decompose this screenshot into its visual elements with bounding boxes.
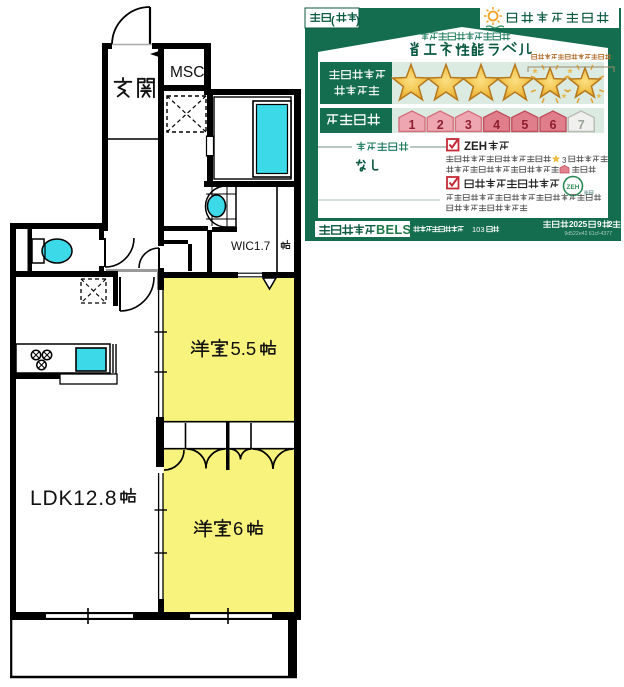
svg-text:3: 3 (465, 118, 472, 132)
svg-text:LDK12.8: LDK12.8 (30, 487, 117, 510)
svg-text:WIC1.7: WIC1.7 (231, 239, 270, 253)
svg-text:(: ( (331, 15, 335, 27)
svg-text:MSC: MSC (170, 64, 204, 81)
svg-text:2025: 2025 (569, 220, 588, 229)
svg-text:): ) (356, 15, 360, 27)
svg-text:5: 5 (521, 118, 528, 132)
svg-text:2: 2 (437, 118, 444, 132)
svg-text:6: 6 (550, 118, 557, 132)
svg-text:BELS: BELS (376, 222, 411, 237)
svg-text:5.5: 5.5 (231, 338, 257, 359)
svg-text:9d522e42 61cf-4377: 9d522e42 61cf-4377 (564, 231, 612, 237)
svg-text:9: 9 (597, 220, 602, 229)
svg-text:ZEH: ZEH (567, 184, 580, 191)
svg-text:7: 7 (578, 118, 585, 132)
svg-text:4: 4 (493, 118, 500, 132)
svg-text:103: 103 (472, 225, 485, 234)
svg-text:2: 2 (608, 220, 613, 229)
svg-text:1: 1 (409, 118, 416, 132)
svg-text:6: 6 (233, 518, 243, 539)
svg-text:3: 3 (562, 156, 567, 165)
svg-text:ZEH: ZEH (464, 141, 487, 153)
